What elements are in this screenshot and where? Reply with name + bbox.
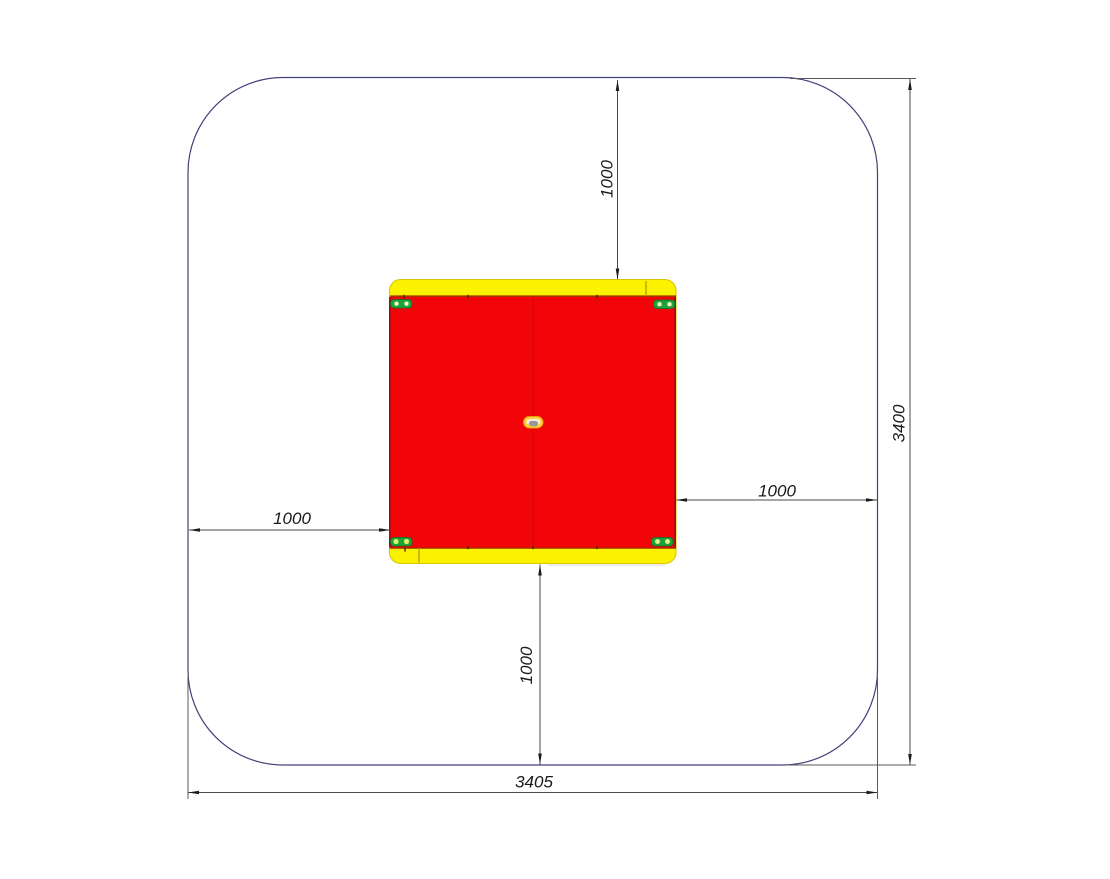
svg-text:1000: 1000 bbox=[758, 482, 796, 501]
svg-text:3405: 3405 bbox=[515, 773, 553, 792]
svg-text:1000: 1000 bbox=[517, 646, 536, 684]
svg-text:1000: 1000 bbox=[273, 509, 311, 528]
svg-text:3400: 3400 bbox=[889, 404, 908, 442]
svg-text:1000: 1000 bbox=[597, 160, 616, 198]
